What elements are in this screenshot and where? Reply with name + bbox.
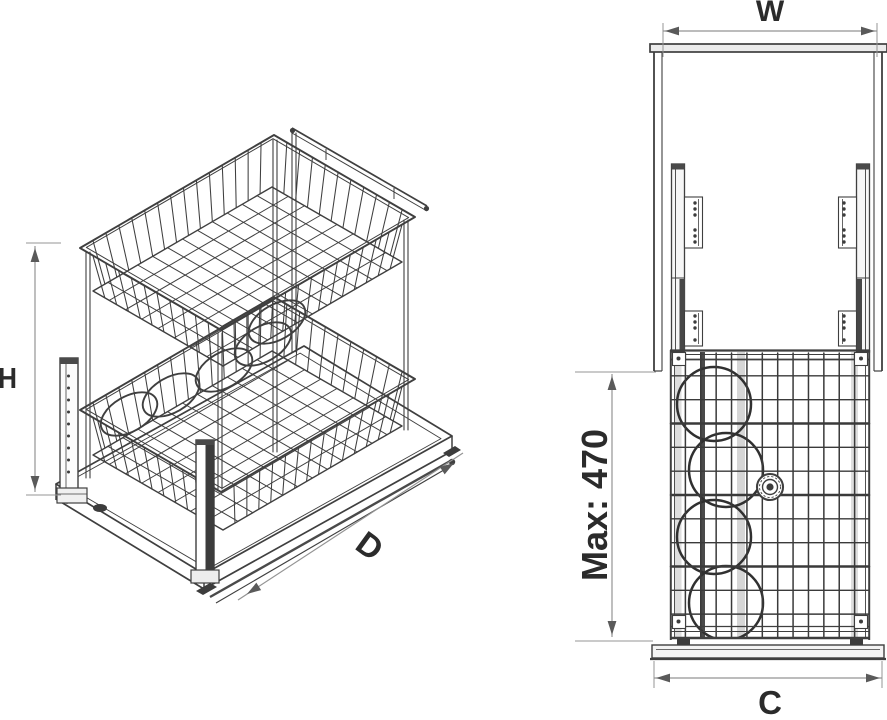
dimension-label-h: H <box>0 363 17 395</box>
bracket-screw-holes <box>693 201 845 341</box>
dimension-c: C <box>654 661 882 720</box>
dimension-h: H <box>0 243 61 495</box>
front-knob <box>757 474 783 500</box>
base-plate <box>650 645 886 659</box>
runner-rail-left <box>672 164 703 352</box>
front-mounting-rail-left <box>57 358 87 503</box>
bottle-rings-front <box>677 367 763 640</box>
lower-wire-basket <box>80 297 415 530</box>
dimension-label-w: W <box>756 0 785 28</box>
dimension-label-d: D <box>349 524 390 568</box>
mounting-bracket <box>685 197 703 248</box>
mounting-bracket <box>839 197 857 248</box>
dimension-max-pullout: Max: 470 <box>574 372 656 641</box>
front-view: W Max: 470 C <box>574 0 887 720</box>
isometric-view: H D <box>0 128 463 603</box>
drawing-canvas: W Max: 470 C <box>0 0 887 720</box>
wire-basket-front <box>670 350 870 640</box>
technical-drawing-page: W Max: 470 C <box>0 0 887 720</box>
dimension-label-c: C <box>758 684 782 720</box>
runner-rail-right <box>839 164 870 352</box>
dimension-label-max: Max: 470 <box>574 429 615 581</box>
mounting-bracket <box>839 311 857 346</box>
